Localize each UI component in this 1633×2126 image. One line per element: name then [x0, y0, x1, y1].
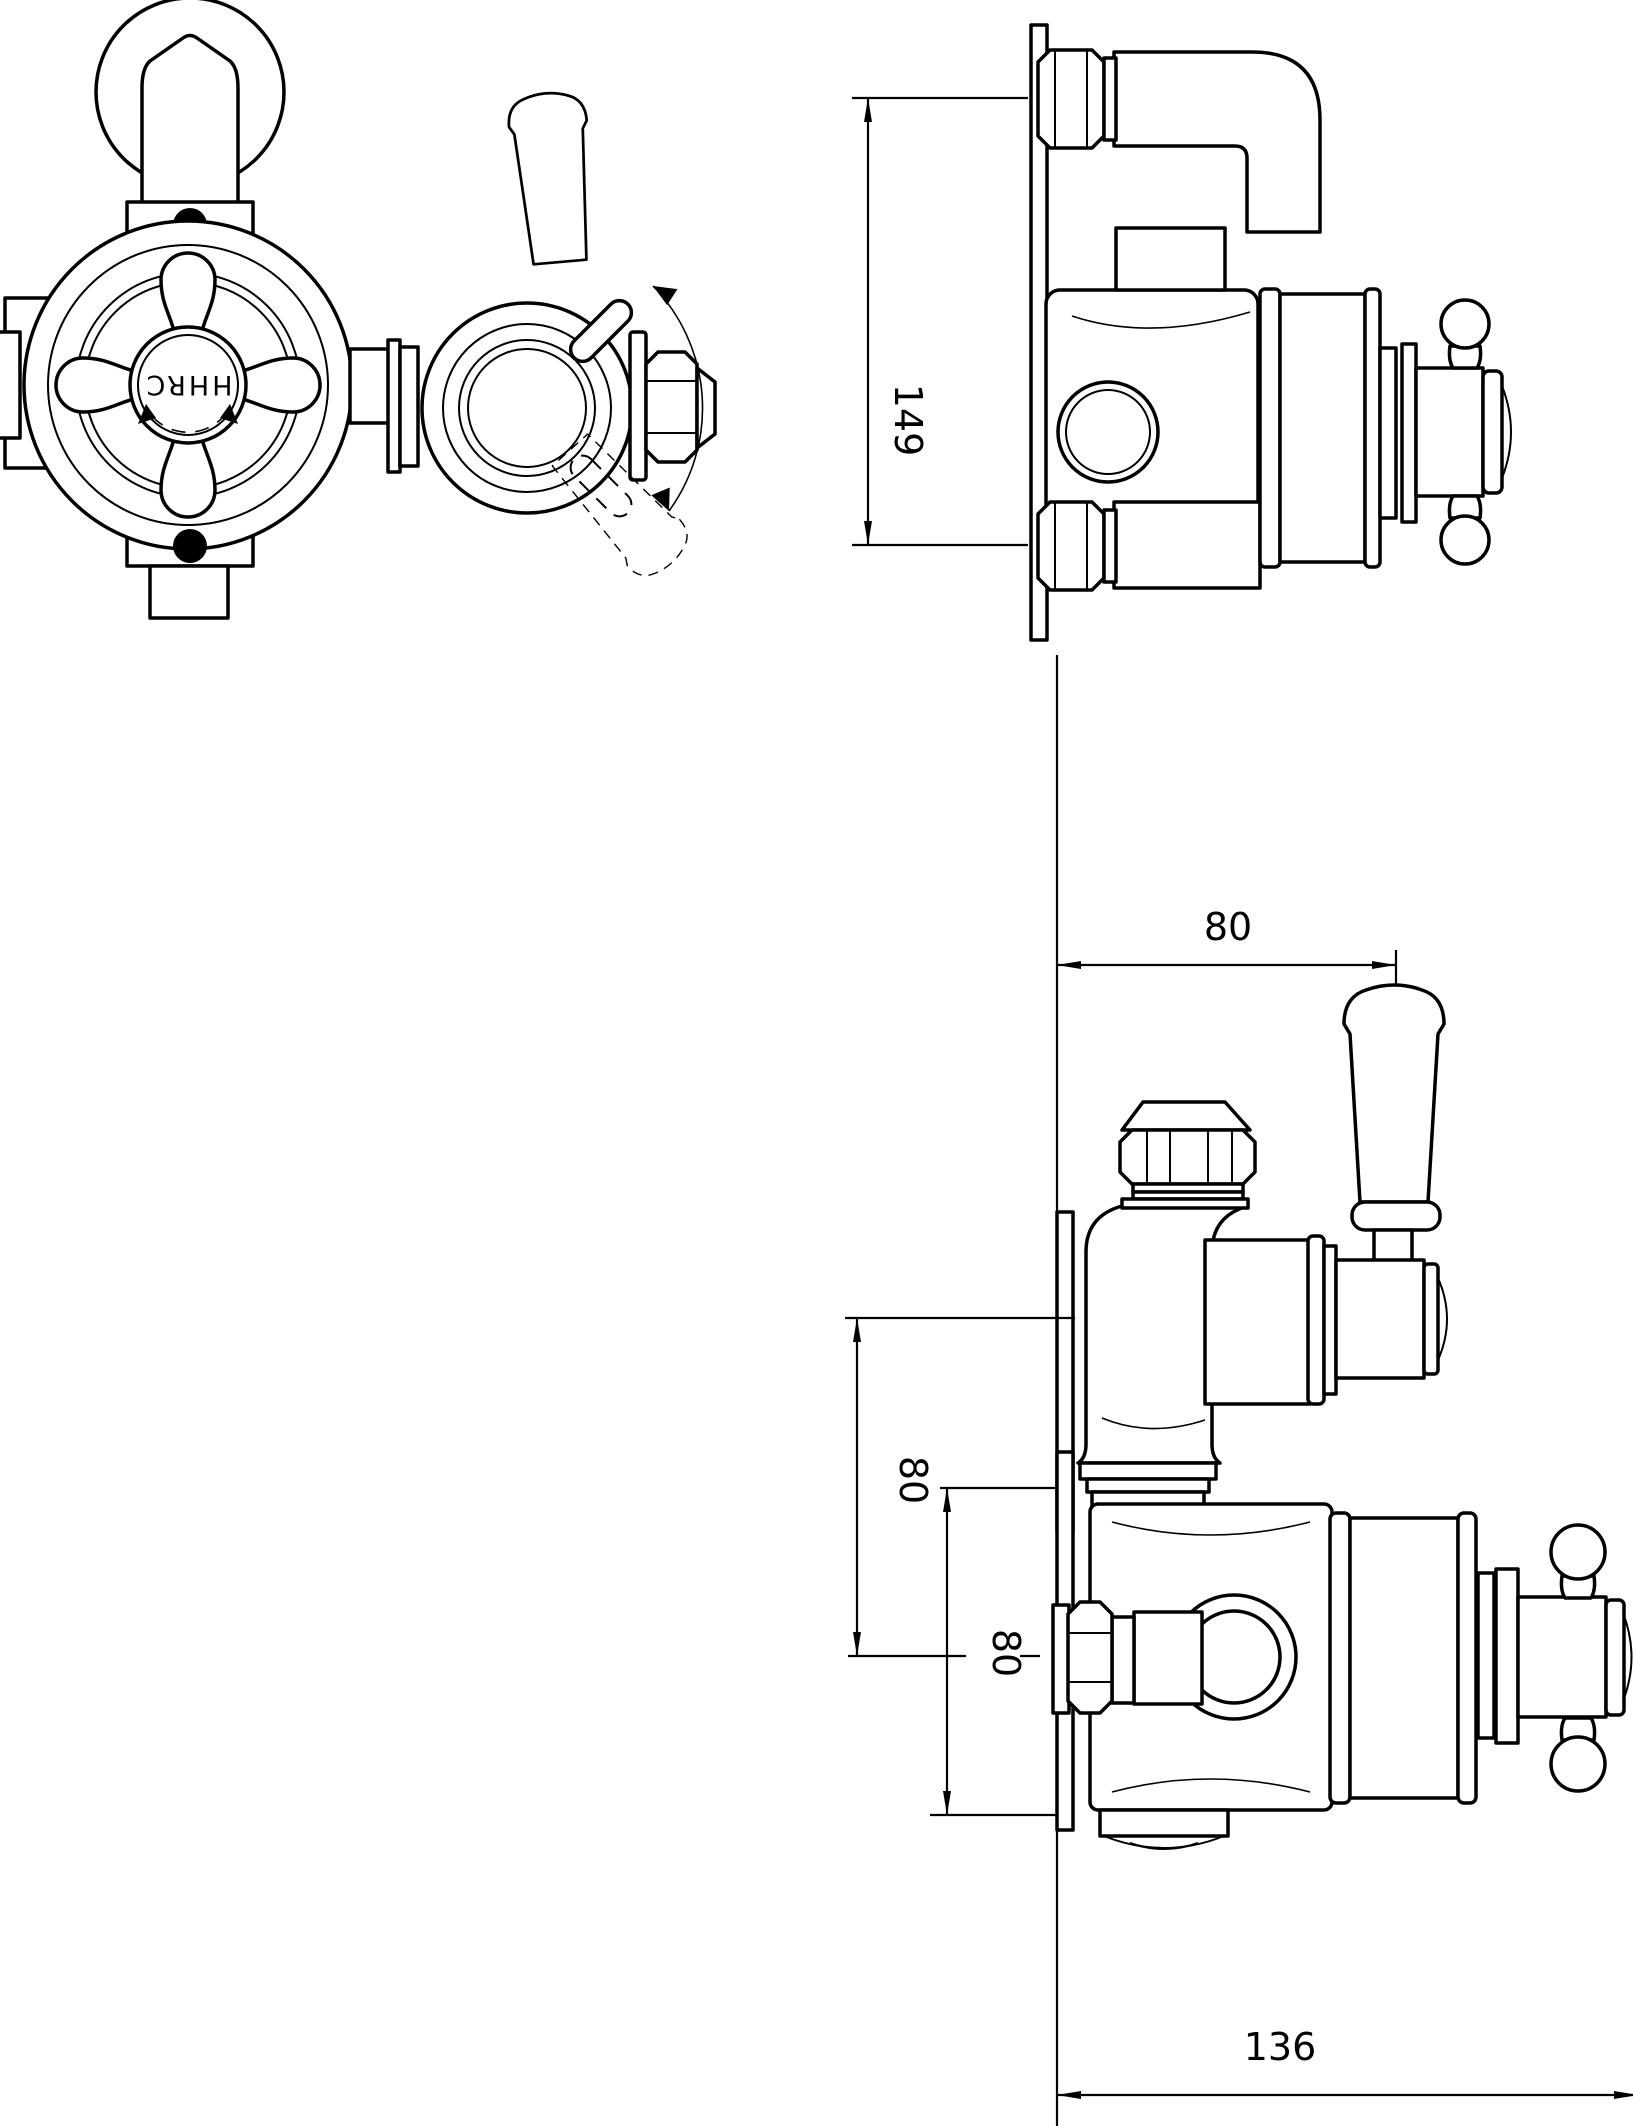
dim-149-arrow-top-icon — [864, 98, 872, 122]
dim-80-lower-arrow-top-icon — [943, 1488, 951, 1512]
bottom-pipe-stub — [150, 566, 228, 618]
upper-cartridge-cap — [1424, 1264, 1438, 1374]
left-union-tail — [0, 332, 20, 438]
lower-hub-plate — [1478, 1573, 1494, 1738]
upper-valve-front — [1057, 985, 1447, 1532]
swing-arrow-top-icon — [653, 280, 681, 307]
inlet-elbow-top — [1114, 52, 1320, 232]
plan-view: HHRC — [0, 0, 715, 618]
dim-80-lower: 80 — [848, 1488, 1057, 1815]
front-view: 80 — [845, 655, 1633, 2126]
hex-nut-top-side — [1038, 50, 1104, 148]
outlet-stub — [1100, 1810, 1228, 1836]
outlet-stub-arc1 — [1104, 1836, 1224, 1848]
technical-drawing: HHRC — [0, 0, 1633, 2126]
hub-cap — [1483, 371, 1502, 493]
dim-136-text: 136 — [1244, 2025, 1317, 2069]
union-neck — [350, 349, 390, 423]
elbow-bonnet-flange — [1116, 228, 1225, 290]
lower-cartridge-end-ring — [1458, 1513, 1476, 1803]
outlet-stub-arc2 — [1130, 1843, 1198, 1849]
cap-cone — [1122, 1102, 1250, 1130]
dim-80-top-arrow-left-icon — [1057, 961, 1081, 969]
dim-80-top-arrow-right-icon — [1372, 961, 1396, 969]
dim-149-arrow-bottom-icon — [864, 521, 872, 545]
lower-crosshead-ball-bottom — [1551, 1737, 1605, 1791]
hub-disc — [1402, 344, 1416, 522]
outlet-pipe-bottom-side — [1114, 502, 1260, 588]
lower-cartridge-ring — [1330, 1513, 1350, 1803]
mounting-screw-bottom — [173, 529, 207, 563]
hub-plate — [1380, 348, 1396, 518]
lower-cartridge-cyl — [1350, 1518, 1458, 1798]
crosshead-ball-bottom — [1441, 516, 1489, 564]
dim-80-upper-arrow-top-icon — [853, 1318, 861, 1342]
hex-nut-bottom-side — [1038, 502, 1104, 590]
upper-bottom-flange-2 — [1087, 1479, 1209, 1492]
side-view: 149 — [852, 25, 1511, 640]
dim-136: 136 — [1057, 1812, 1633, 2108]
upper-cartridge-cyl — [1336, 1260, 1424, 1378]
dim-80-lower-text: 80 — [984, 1629, 1028, 1677]
dim-136-arrow-right-icon — [1614, 2091, 1633, 2099]
upper-lever-pivot — [1352, 1202, 1440, 1230]
lower-crosshead-ball-top — [1551, 1525, 1605, 1579]
cartridge-ring — [1260, 289, 1280, 567]
inlet-pipe — [1134, 1612, 1202, 1704]
upper-valve-boss — [1205, 1240, 1310, 1404]
upper-lever-stem — [1374, 1230, 1412, 1262]
dim-149: 149 — [852, 98, 1028, 545]
cartridge-cylinder — [1280, 294, 1365, 562]
washer-top-side — [1104, 58, 1116, 140]
cap-bonnet — [1122, 1199, 1248, 1208]
inlet-hex-nut — [1068, 1602, 1112, 1713]
hub-cylinder — [1416, 368, 1483, 496]
dim-80-top: 80 — [1057, 905, 1396, 1002]
supply-pipe — [142, 36, 238, 211]
outlet-collar — [630, 332, 646, 480]
inlet-collar — [1112, 1617, 1134, 1703]
dim-80-upper-text: 80 — [891, 1456, 935, 1504]
dim-80-top-text: 80 — [1204, 905, 1252, 949]
drawing-sheet: HHRC — [0, 0, 1633, 2126]
hub-marking-text: HHRC — [144, 369, 233, 400]
upper-bottom-flange — [1080, 1463, 1216, 1479]
dim-149-text: 149 — [886, 384, 930, 457]
cartridge-end-ring — [1365, 289, 1380, 567]
lever-grip — [506, 90, 598, 265]
dim-80-upper-arrow-bottom-icon — [853, 1632, 861, 1656]
upper-cartridge-ring2 — [1324, 1246, 1336, 1394]
lower-valve-front — [1053, 1452, 1632, 1849]
lower-hub-disc — [1496, 1569, 1518, 1743]
upper-lever-grip — [1344, 985, 1444, 1202]
dim-80-lower-arrow-bottom-icon — [943, 1791, 951, 1815]
side-port-boss — [1058, 382, 1158, 482]
temp-cartridge-side — [1260, 289, 1511, 567]
upper-cartridge-ring — [1308, 1236, 1324, 1404]
lower-hub-cap — [1606, 1600, 1624, 1715]
cap-hex-nut — [1120, 1130, 1255, 1184]
crosshead-ball-top — [1441, 300, 1489, 348]
union-collar-2 — [400, 347, 418, 466]
outlet-hex-nut — [646, 352, 697, 462]
washer-bottom-side — [1104, 510, 1116, 582]
union-collar — [388, 340, 400, 472]
lower-hub-cyl — [1518, 1597, 1606, 1717]
dim-136-arrow-left-icon — [1057, 2091, 1081, 2099]
